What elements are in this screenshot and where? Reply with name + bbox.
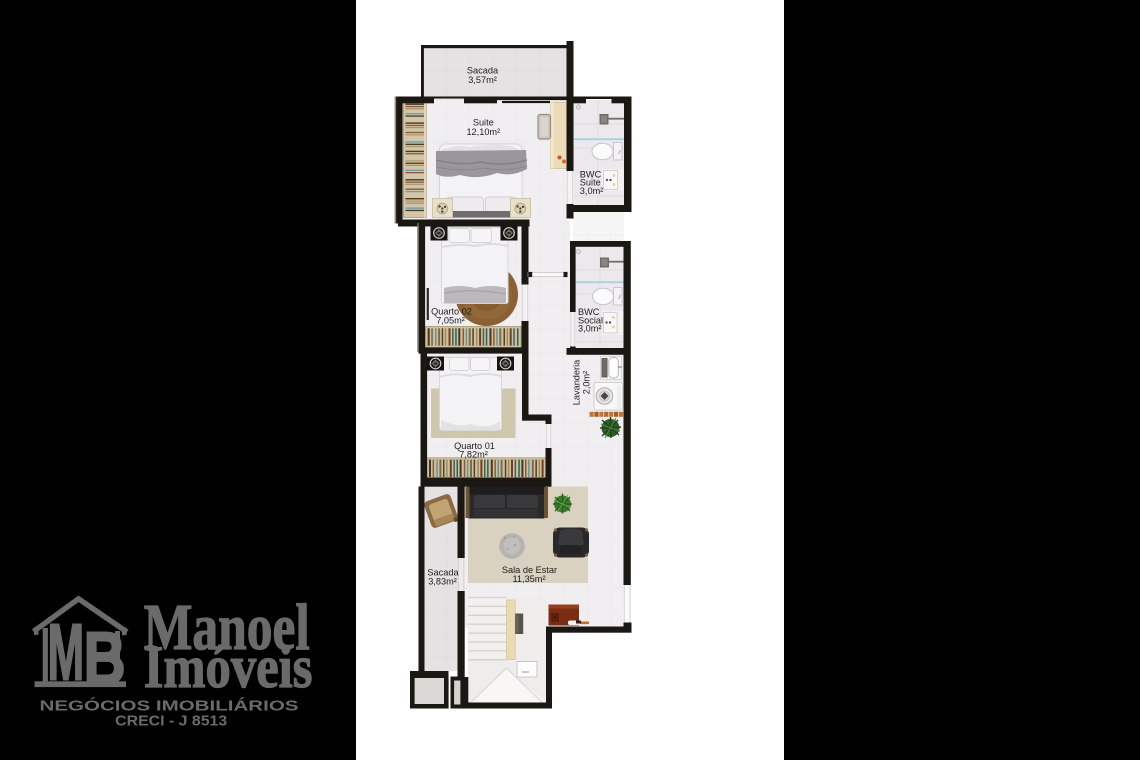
svg-text:7,05m²: 7,05m²: [436, 315, 465, 325]
svg-text:M: M: [48, 608, 85, 697]
svg-text:11,35m²: 11,35m²: [512, 574, 545, 584]
svg-text:3,57m²: 3,57m²: [468, 75, 497, 85]
svg-text:3,83m²: 3,83m²: [428, 576, 457, 586]
svg-text:Lavanderia: Lavanderia: [572, 359, 582, 405]
svg-text:2,0m²: 2,0m²: [582, 371, 592, 395]
svg-text:CRECI - J 8513: CRECI - J 8513: [115, 714, 227, 730]
svg-text:Imóveis: Imóveis: [144, 634, 313, 700]
svg-text:3,0m²: 3,0m²: [578, 324, 602, 334]
svg-text:NEGÓCIOS IMOBILIÁRIOS: NEGÓCIOS IMOBILIÁRIOS: [40, 697, 299, 715]
svg-text:12,10m²: 12,10m²: [466, 127, 500, 137]
svg-text:B: B: [84, 618, 126, 700]
svg-text:3,0m²: 3,0m²: [580, 186, 604, 196]
svg-text:7,82m²: 7,82m²: [459, 449, 488, 459]
